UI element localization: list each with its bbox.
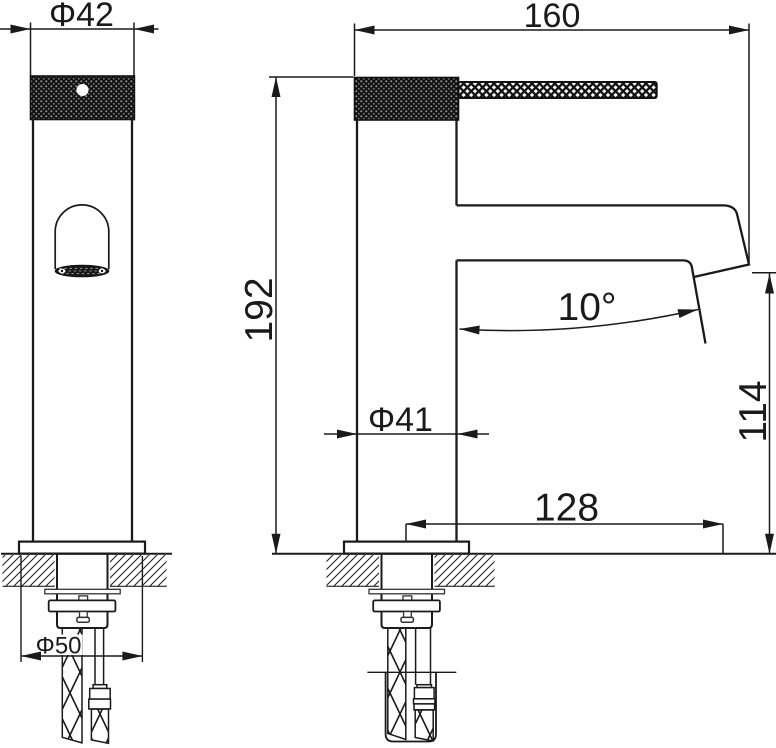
svg-text:10°: 10°	[558, 286, 617, 329]
svg-text:114: 114	[732, 380, 775, 442]
svg-text:192: 192	[238, 277, 281, 342]
svg-text:128: 128	[534, 487, 599, 530]
